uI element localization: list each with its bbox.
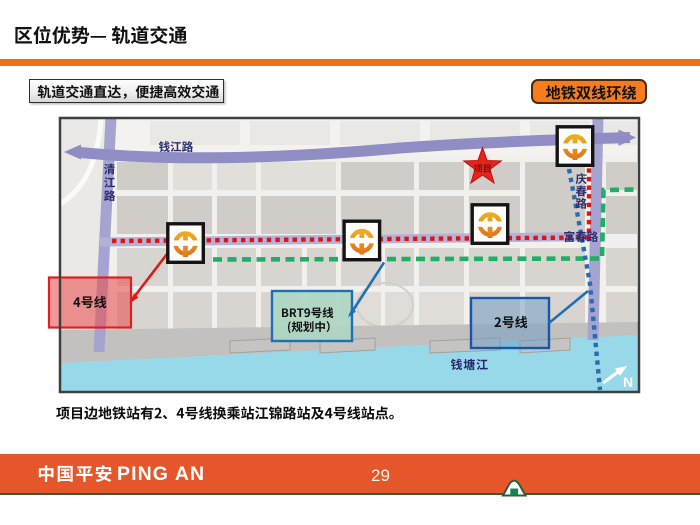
- svg-text:N: N: [623, 374, 633, 390]
